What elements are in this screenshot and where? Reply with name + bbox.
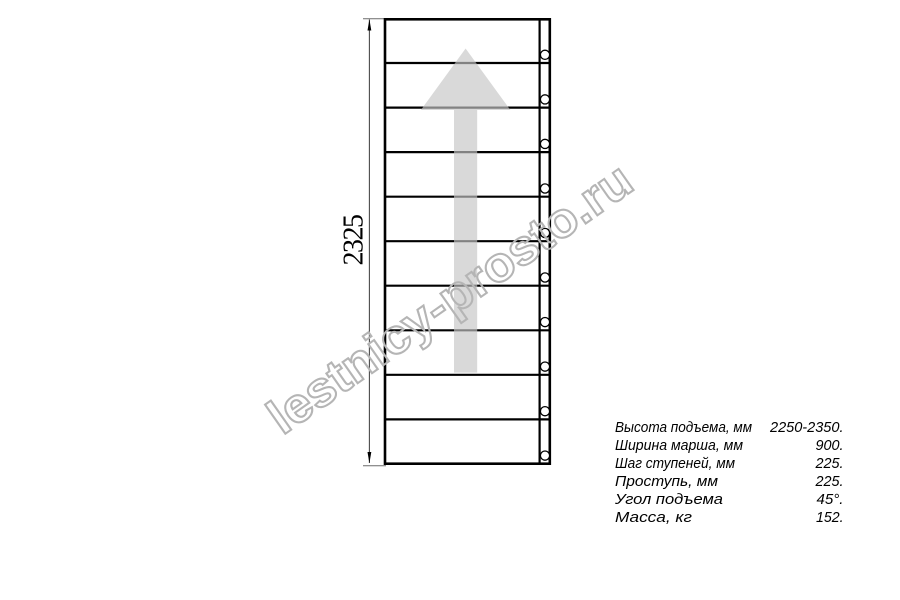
svg-text:2325: 2325 — [339, 215, 370, 266]
svg-text:Угол подъема: Угол подъема — [614, 492, 723, 508]
svg-text:2250-2350.: 2250-2350. — [769, 419, 843, 436]
svg-text:900.: 900. — [816, 437, 844, 454]
svg-text:225.: 225. — [815, 455, 844, 472]
svg-text:45°.: 45°. — [817, 491, 844, 508]
svg-text:Ширина марша, мм: Ширина марша, мм — [615, 438, 743, 454]
svg-text:Шаг ступеней, мм: Шаг ступеней, мм — [615, 456, 735, 472]
svg-text:225.: 225. — [815, 473, 844, 490]
svg-text:Высота подъема, мм: Высота подъема, мм — [615, 420, 752, 436]
svg-text:Масса, кг: Масса, кг — [615, 510, 692, 526]
svg-text:152.: 152. — [816, 509, 844, 526]
svg-text:Проступь, мм: Проступь, мм — [615, 474, 718, 490]
